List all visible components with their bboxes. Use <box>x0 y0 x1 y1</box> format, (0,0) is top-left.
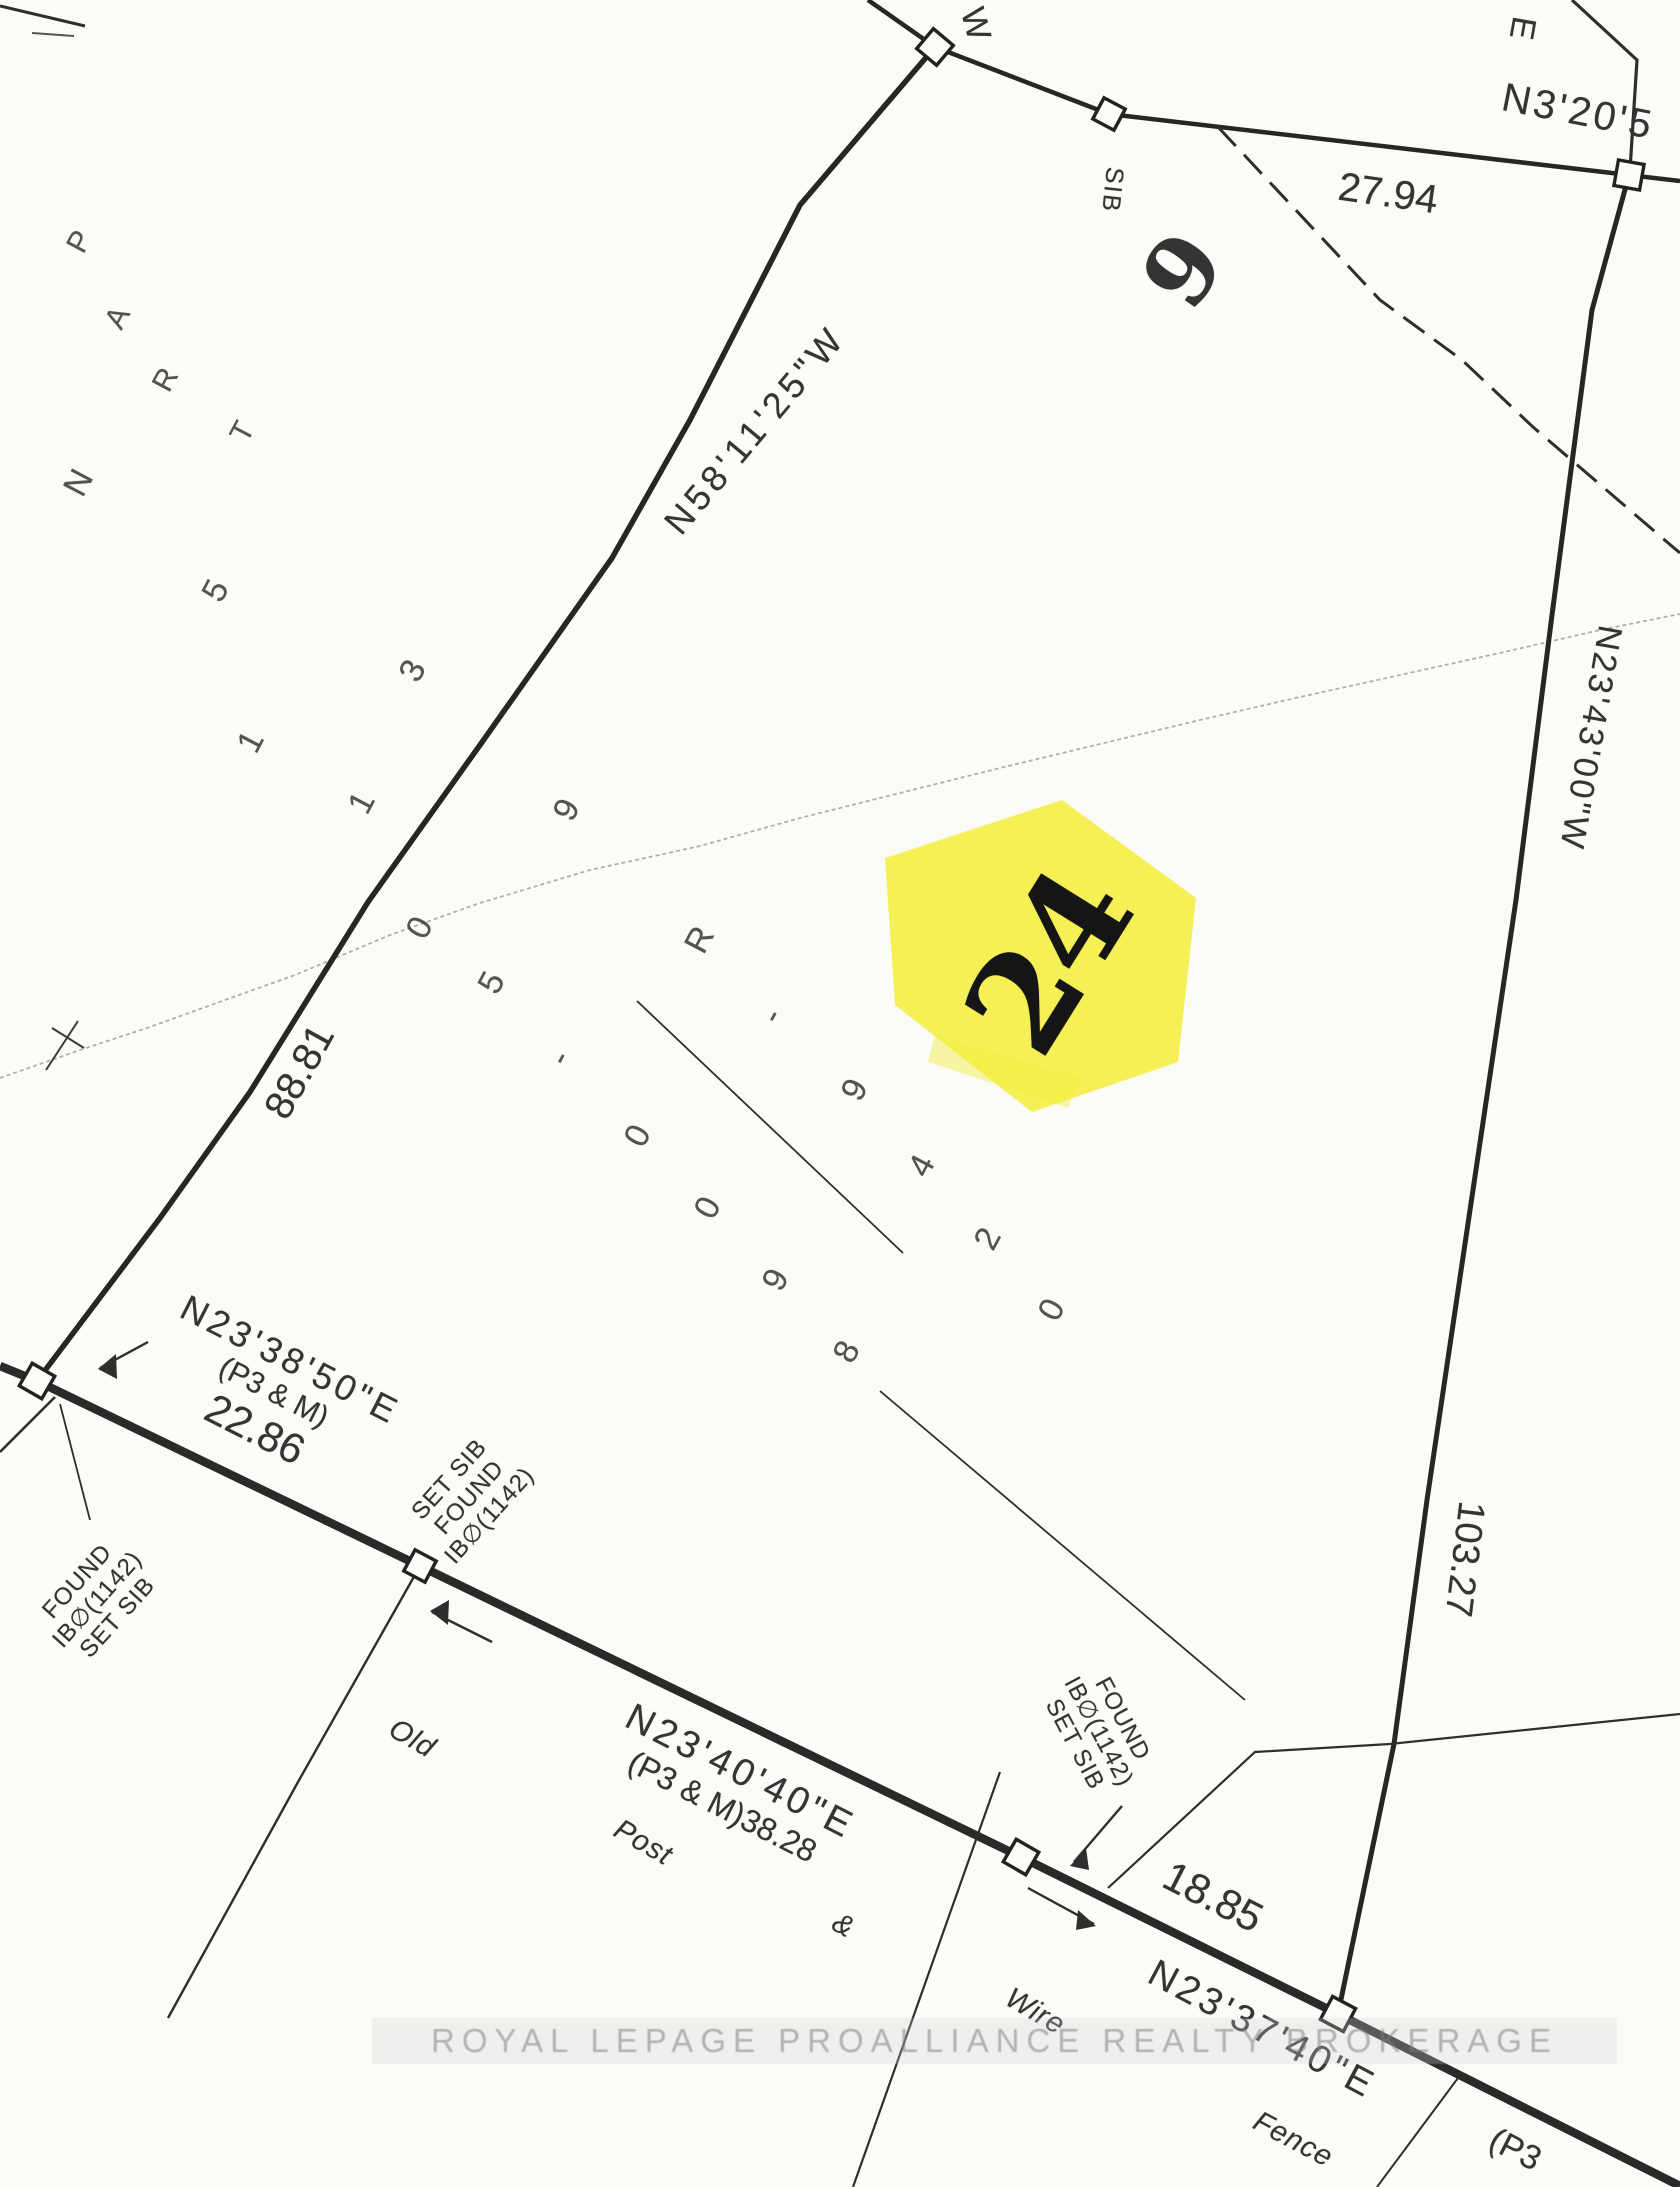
west-fence-tick-a <box>46 1021 78 1070</box>
lot-line-2 <box>853 1772 1000 2187</box>
fence-line <box>0 614 1680 1078</box>
arrow-d-head <box>1076 1910 1096 1930</box>
survey-linework <box>0 0 1680 2187</box>
east-boundary-line <box>1338 175 1629 2014</box>
leader-line-1 <box>637 1001 903 1253</box>
lot-line-1 <box>168 1566 420 2018</box>
survey-plan-scan: N58'11'25"W 88.81 N3'20'5 27.94 W E SIB … <box>0 0 1680 2187</box>
sw-corner-stub <box>0 1397 55 1452</box>
sib-label: SIB <box>1095 165 1129 214</box>
monument-icon <box>1093 98 1125 130</box>
monument-icon <box>1614 160 1644 190</box>
west-fence-tick-b <box>52 1028 84 1048</box>
fence-below-road <box>1377 2078 1458 2187</box>
sw-corner-stub-2 <box>60 1404 90 1520</box>
arrow-c-head <box>1070 1848 1089 1870</box>
leader-line-2 <box>880 1391 1245 1700</box>
monument-icon <box>404 1550 436 1582</box>
watermark: ROYAL LEPAGE PROALLIANCE REALTY BROKERAG… <box>372 2018 1617 2064</box>
top-left-corner-tick <box>32 33 74 36</box>
top-left-corner-line <box>0 6 85 26</box>
arrow-b-head <box>430 1600 449 1625</box>
monument-icon <box>1003 1839 1039 1875</box>
west-boundary-line <box>37 47 935 1381</box>
branch-diagonal-line <box>1218 127 1680 553</box>
